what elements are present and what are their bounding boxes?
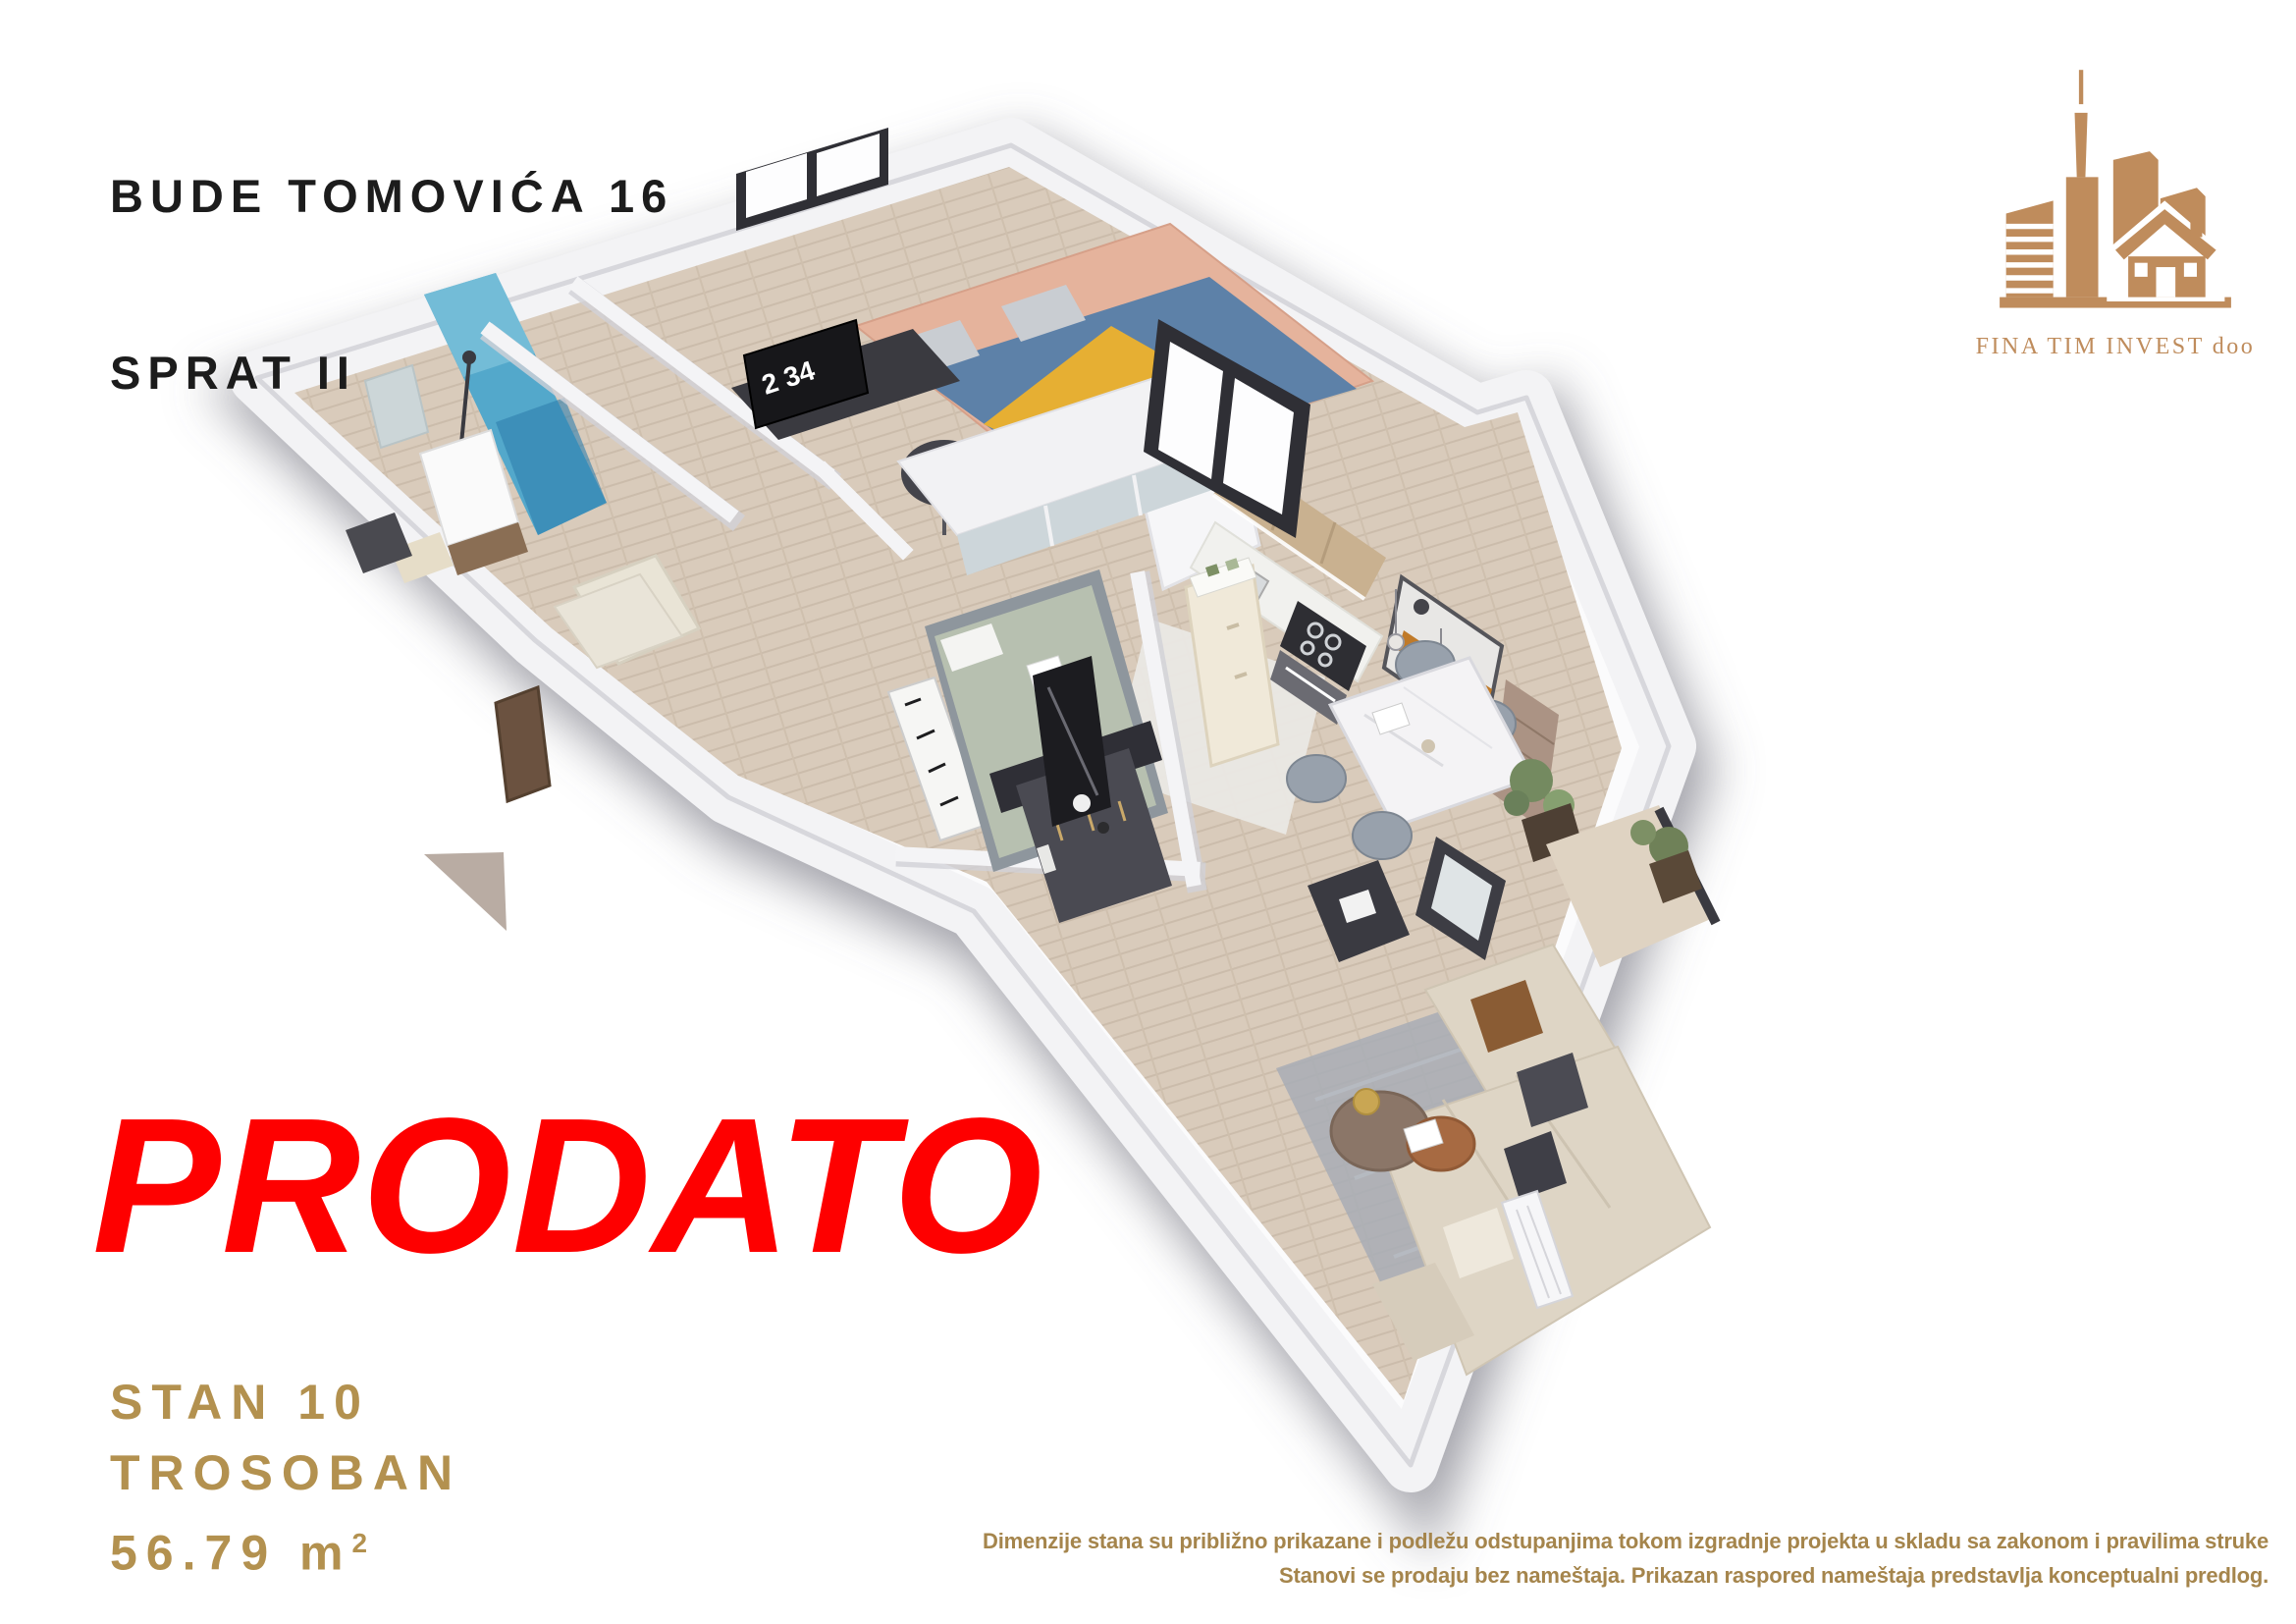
decor-bowl [1354,1089,1379,1114]
triangle-marker [424,852,507,931]
decor-vase [1073,794,1091,812]
address-line-1: BUDE TOMOVIĆA 16 [110,167,673,226]
dining-chair [1353,812,1412,859]
disclaimer-line-2: Stanovi se prodaju bez nameštaja. Prikaz… [796,1558,2269,1593]
company-name: FINA TIM INVEST doo [1968,334,2263,360]
unit-layout: TROSOBAN [110,1437,461,1508]
dining-chair [1287,755,1346,802]
disclaimer: Dimenzije stana su približno prikazane i… [796,1524,2269,1593]
company-logo-icon [1987,61,2244,332]
table-vase [1421,739,1435,753]
unit-number: STAN 10 [110,1367,461,1437]
sold-stamp: PRODATO [92,1088,1043,1284]
property-address: BUDE TOMOVIĆA 16 SPRAT II [110,49,673,461]
unit-area: 56.79 m2 [110,1508,461,1589]
company-logo: FINA TIM INVEST doo [1968,61,2263,360]
unit-info: STAN 10 TROSOBAN 56.79 m2 [110,1367,461,1589]
disclaimer-line-1: Dimenzije stana su približno prikazane i… [796,1524,2269,1558]
entry-door [496,687,550,801]
address-line-2: SPRAT II [110,344,673,403]
area-superscript: 2 [351,1528,367,1558]
